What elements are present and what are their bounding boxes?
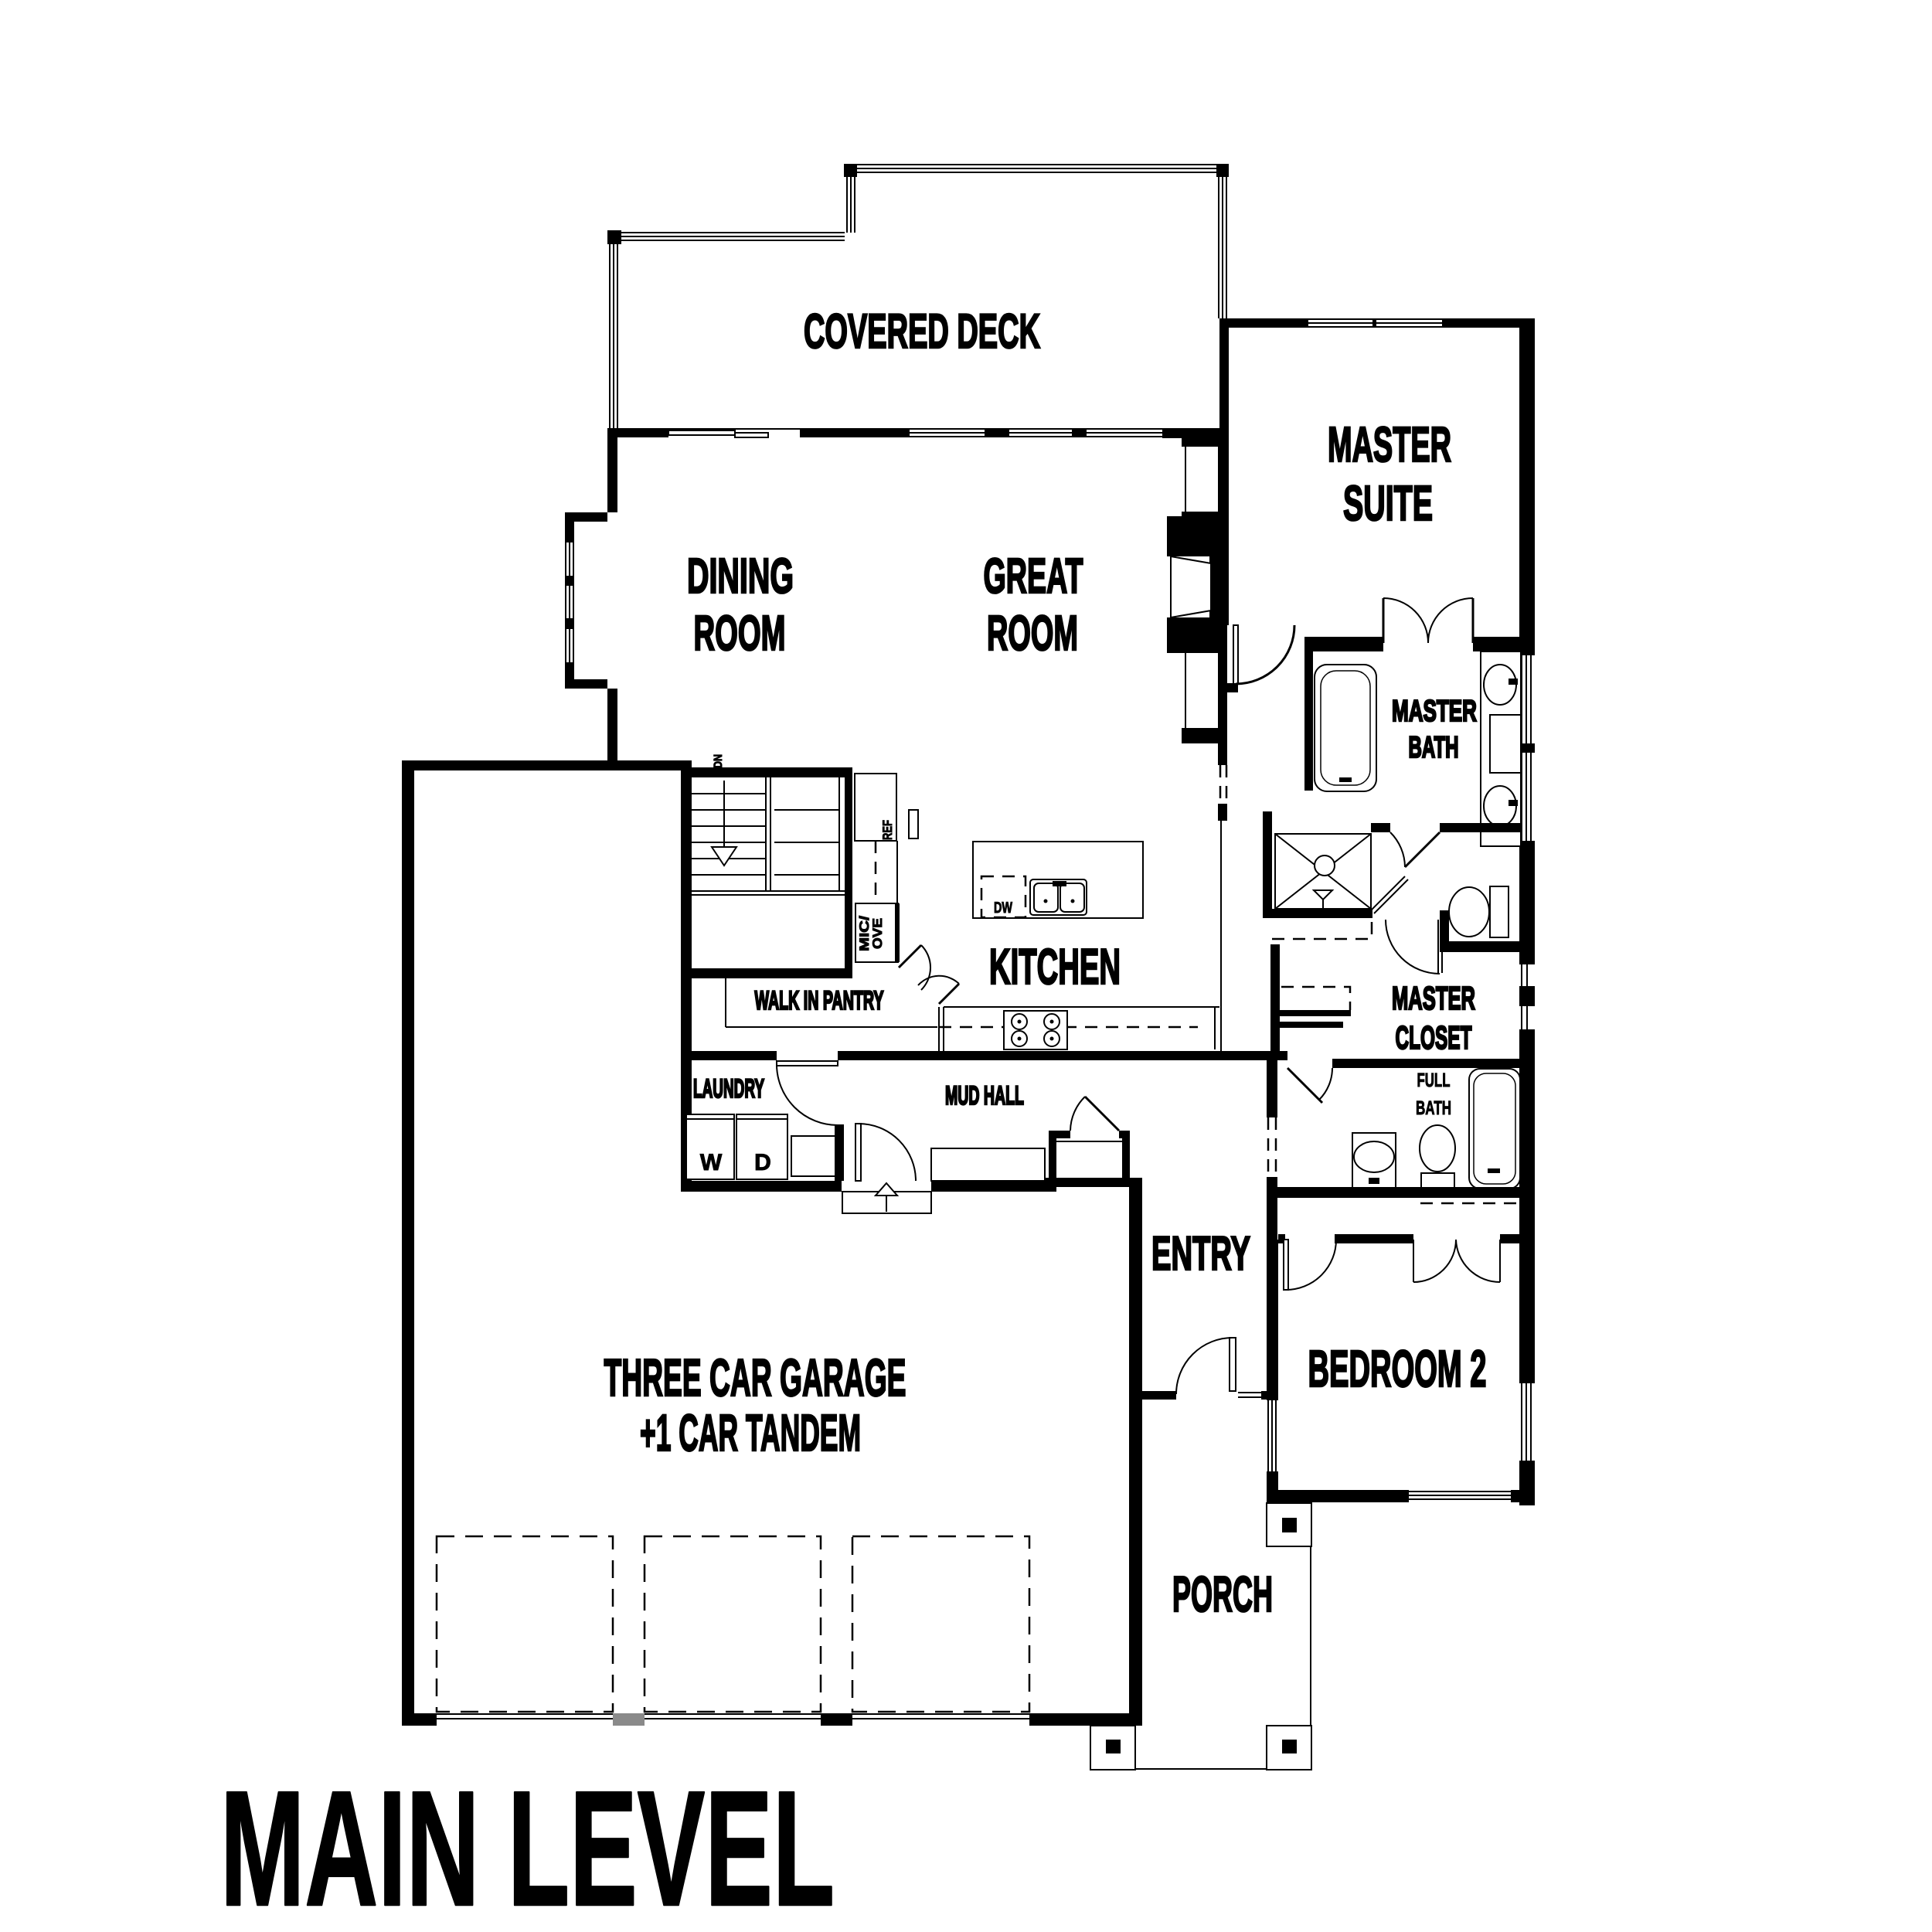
svg-text:DW: DW — [994, 900, 1012, 917]
svg-text:KITCHEN: KITCHEN — [989, 938, 1121, 995]
svg-text:BATH: BATH — [1409, 731, 1459, 764]
svg-text:+1 CAR TANDEM: +1 CAR TANDEM — [640, 1404, 861, 1462]
svg-text:BATH: BATH — [1416, 1097, 1451, 1119]
svg-text:OVE: OVE — [870, 918, 885, 949]
svg-text:MASTER: MASTER — [1392, 695, 1477, 728]
svg-text:DN: DN — [712, 754, 725, 768]
svg-text:COVERED DECK: COVERED DECK — [804, 304, 1040, 359]
svg-text:FULL: FULL — [1417, 1070, 1451, 1091]
svg-text:MASTER: MASTER — [1328, 417, 1451, 472]
svg-text:MAIN LEVEL: MAIN LEVEL — [220, 1757, 835, 1932]
svg-text:DINING: DINING — [687, 548, 794, 604]
svg-text:ENTRY: ENTRY — [1151, 1227, 1250, 1281]
svg-text:D: D — [754, 1150, 771, 1175]
svg-text:CLOSET: CLOSET — [1396, 1019, 1472, 1056]
svg-text:ROOM: ROOM — [987, 605, 1078, 661]
svg-text:SUITE: SUITE — [1343, 475, 1433, 531]
svg-text:ROOM: ROOM — [694, 605, 786, 661]
svg-text:BEDROOM 2: BEDROOM 2 — [1308, 1340, 1487, 1398]
svg-text:LAUNDRY: LAUNDRY — [693, 1074, 764, 1104]
svg-text:GREAT: GREAT — [984, 548, 1083, 604]
svg-text:WALK IN PANTRY: WALK IN PANTRY — [755, 986, 884, 1015]
svg-text:MUD HALL: MUD HALL — [945, 1081, 1024, 1111]
svg-text:MASTER: MASTER — [1392, 980, 1475, 1016]
svg-text:REF: REF — [880, 820, 895, 840]
svg-text:PORCH: PORCH — [1172, 1566, 1273, 1622]
svg-text:W: W — [700, 1150, 723, 1175]
svg-text:THREE CAR GARAGE: THREE CAR GARAGE — [604, 1349, 906, 1407]
